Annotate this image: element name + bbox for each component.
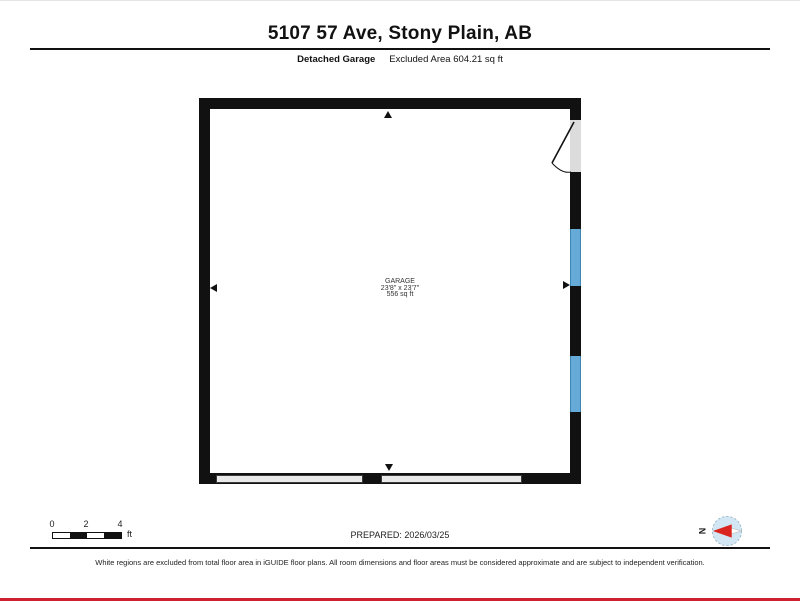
footer-divider: [30, 547, 770, 549]
floorplan-page: 5107 57 Ave, Stony Plain, AB Detached Ga…: [0, 0, 800, 600]
scale-unit-label: ft: [127, 529, 132, 539]
door-swing-icon: [540, 113, 582, 181]
compass-icon: [711, 515, 743, 547]
room-area: 556 sq ft: [310, 292, 490, 299]
plan-subtitle: Detached GarageExcluded Area 604.21 sq f…: [0, 54, 800, 65]
window-segment-2: [570, 356, 581, 412]
window-segment-1: [570, 229, 581, 286]
garage-door-panel-1: [216, 475, 363, 483]
scale-tick-4: 4: [113, 519, 127, 529]
excluded-area-label: Excluded Area 604.21 sq ft: [389, 54, 503, 65]
dimension-marker-south-icon: [385, 464, 393, 471]
prepared-date: PREPARED: 2026/03/25: [300, 530, 500, 540]
page-title: 5107 57 Ave, Stony Plain, AB: [0, 23, 800, 45]
compass-north-label: N: [697, 528, 707, 535]
disclaimer-text: White regions are excluded from total fl…: [0, 558, 800, 567]
scale-bar-graphic: [52, 532, 122, 539]
room-label: GARAGE 23'8" x 23'7" 556 sq ft: [310, 279, 490, 299]
wall-west: [199, 98, 210, 484]
wall-north: [199, 98, 581, 109]
scale-tick-2: 2: [79, 519, 93, 529]
garage-door-panel-2: [381, 475, 522, 483]
header-divider: [30, 48, 770, 50]
floor-name-label: Detached Garage: [297, 54, 375, 65]
scale-tick-0: 0: [45, 519, 59, 529]
dimension-marker-east-icon: [563, 281, 570, 289]
dimension-marker-west-icon: [210, 284, 217, 292]
dimension-marker-north-icon: [384, 111, 392, 118]
